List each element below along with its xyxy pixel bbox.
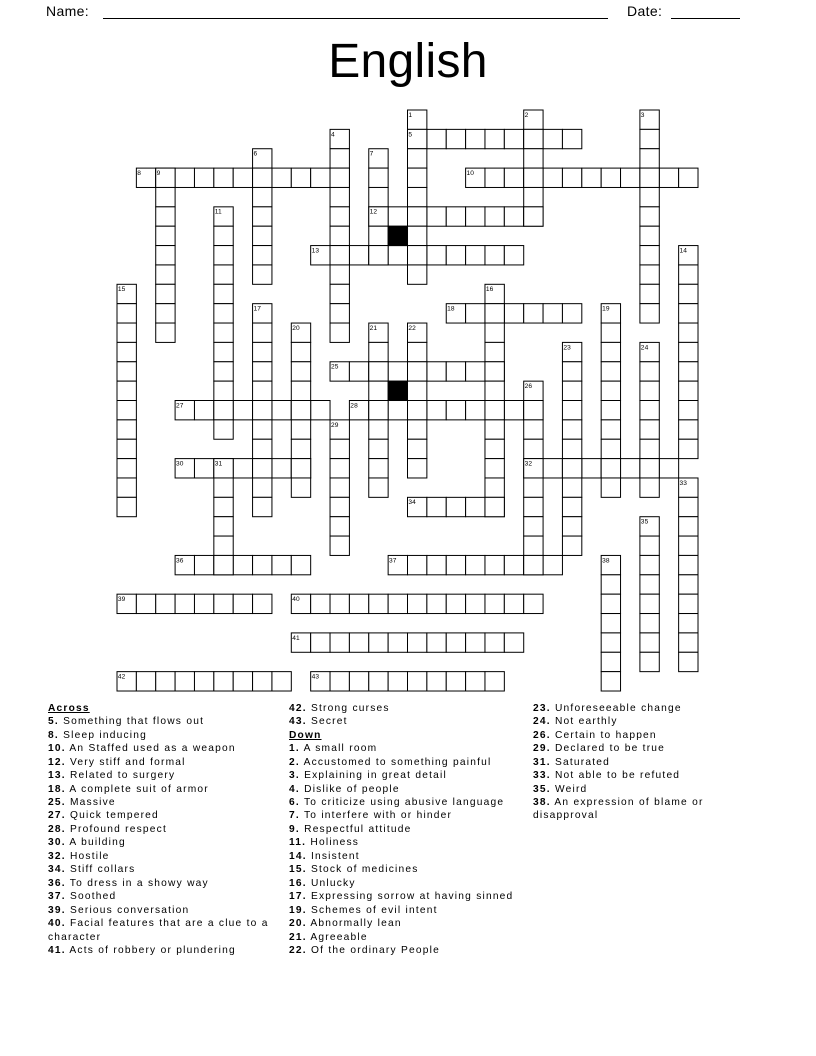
svg-text:27: 27: [176, 402, 184, 409]
svg-text:19: 19: [602, 306, 610, 313]
svg-text:7: 7: [370, 151, 374, 158]
svg-text:18: 18: [447, 306, 455, 313]
svg-text:36: 36: [176, 557, 184, 564]
svg-text:33: 33: [680, 480, 688, 487]
svg-text:21: 21: [370, 325, 378, 332]
svg-text:9: 9: [157, 170, 161, 177]
svg-text:28: 28: [350, 402, 358, 409]
svg-text:11: 11: [215, 209, 222, 216]
svg-text:10: 10: [467, 170, 475, 177]
svg-text:29: 29: [331, 422, 339, 429]
svg-text:15: 15: [118, 286, 126, 293]
svg-text:43: 43: [312, 674, 320, 681]
svg-text:6: 6: [253, 151, 257, 158]
svg-text:30: 30: [176, 461, 184, 468]
svg-text:41: 41: [292, 635, 300, 642]
svg-text:13: 13: [312, 247, 320, 254]
svg-text:25: 25: [331, 364, 339, 371]
svg-text:34: 34: [408, 499, 416, 506]
svg-text:42: 42: [118, 674, 126, 681]
svg-text:32: 32: [525, 461, 533, 468]
svg-text:2: 2: [525, 112, 529, 119]
svg-text:12: 12: [370, 209, 378, 216]
svg-text:4: 4: [331, 131, 335, 138]
svg-text:5: 5: [408, 131, 412, 138]
svg-text:23: 23: [563, 344, 571, 351]
svg-text:16: 16: [486, 286, 494, 293]
svg-text:14: 14: [680, 247, 688, 254]
svg-text:24: 24: [641, 344, 649, 351]
svg-text:26: 26: [525, 383, 533, 390]
svg-text:39: 39: [118, 596, 126, 603]
svg-text:35: 35: [641, 519, 649, 526]
svg-text:20: 20: [292, 325, 300, 332]
svg-text:8: 8: [137, 170, 141, 177]
svg-text:37: 37: [389, 557, 397, 564]
svg-text:1: 1: [408, 112, 412, 119]
svg-text:31: 31: [215, 461, 223, 468]
svg-text:22: 22: [408, 325, 416, 332]
svg-text:3: 3: [641, 112, 645, 119]
svg-text:38: 38: [602, 557, 610, 564]
svg-text:17: 17: [253, 306, 261, 313]
svg-text:40: 40: [292, 596, 300, 603]
